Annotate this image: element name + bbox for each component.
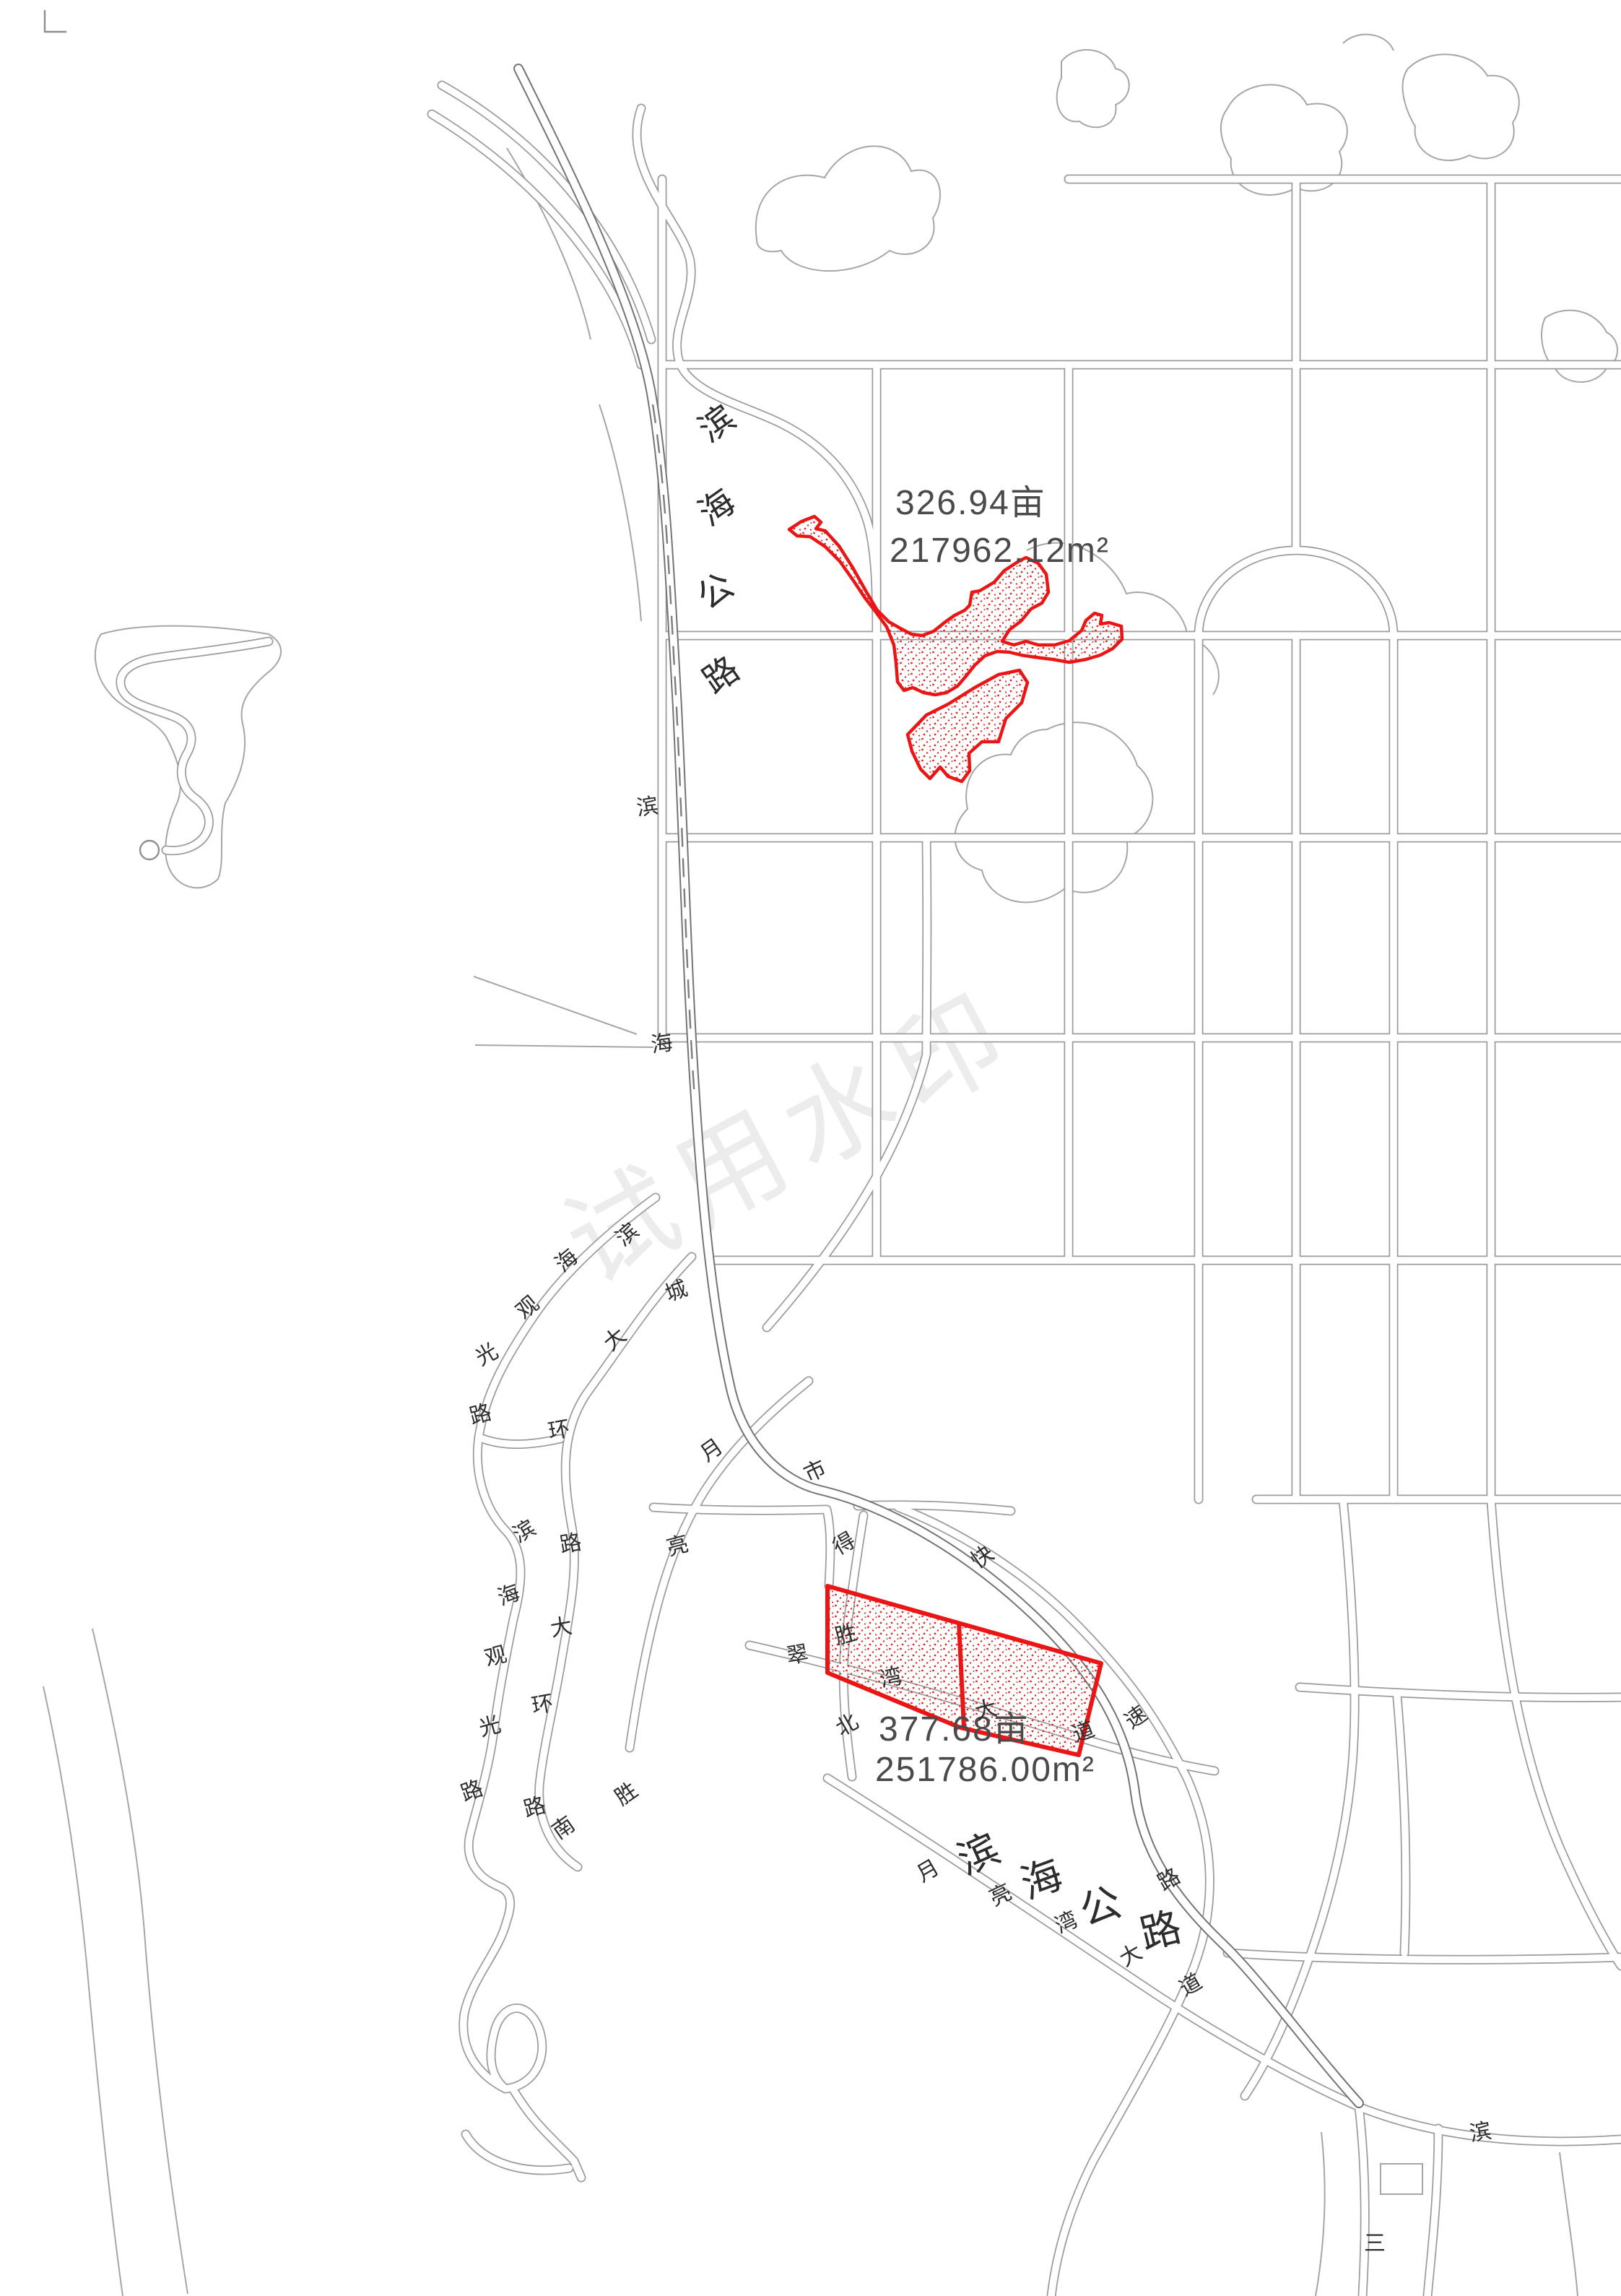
road-label: 路 bbox=[558, 1530, 583, 1558]
road-label: 环 bbox=[530, 1691, 555, 1719]
road-label: 月 bbox=[913, 1855, 943, 1887]
road-label: 大 bbox=[549, 1614, 574, 1642]
north-parcel-area-m2: 217962.12m² bbox=[890, 532, 1110, 570]
road-label: 海 bbox=[650, 1031, 674, 1057]
road-label: 胜 bbox=[611, 1778, 643, 1810]
road-label: 观 bbox=[512, 1291, 544, 1324]
road-label: 三 bbox=[1364, 2232, 1386, 2256]
road-name-char: 公 bbox=[1074, 1879, 1127, 1934]
road-label: 湾 bbox=[1051, 1907, 1081, 1938]
road-name-char: 海 bbox=[1014, 1850, 1068, 1907]
road-name-char: 滨 bbox=[951, 1825, 1007, 1883]
road-label: 环 bbox=[547, 1417, 572, 1444]
road-name-char: 公 bbox=[690, 566, 741, 618]
road-name-char: 路 bbox=[696, 650, 747, 701]
road-label: 翠 bbox=[785, 1642, 810, 1669]
trial-watermark-text: 试用水印 bbox=[546, 968, 1036, 1306]
road-network-surface bbox=[121, 85, 1621, 2296]
road-label: 滨 bbox=[1468, 2119, 1493, 2146]
road-label: 滨 bbox=[635, 794, 660, 820]
map-canvas: 试用水印 326.94亩 217962.12 bbox=[0, 0, 1621, 2296]
road-label: 光 bbox=[471, 1339, 502, 1371]
road-name-char: 海 bbox=[692, 482, 742, 534]
south-parcel-area-m2: 251786.00m² bbox=[875, 1751, 1095, 1789]
road-label: 大 bbox=[599, 1323, 631, 1356]
road-name-binhai-highway-vertical: 滨 海 公 路 bbox=[690, 399, 747, 701]
cad-map-page: 试用水印 326.94亩 217962.12 bbox=[0, 0, 1621, 2296]
south-parcel-area-mu: 377.68亩 bbox=[879, 1710, 1030, 1749]
road-label: 北 bbox=[832, 1710, 862, 1741]
road-name-char: 路 bbox=[1135, 1904, 1186, 1958]
north-parcel-area-mu: 326.94亩 bbox=[895, 484, 1046, 522]
